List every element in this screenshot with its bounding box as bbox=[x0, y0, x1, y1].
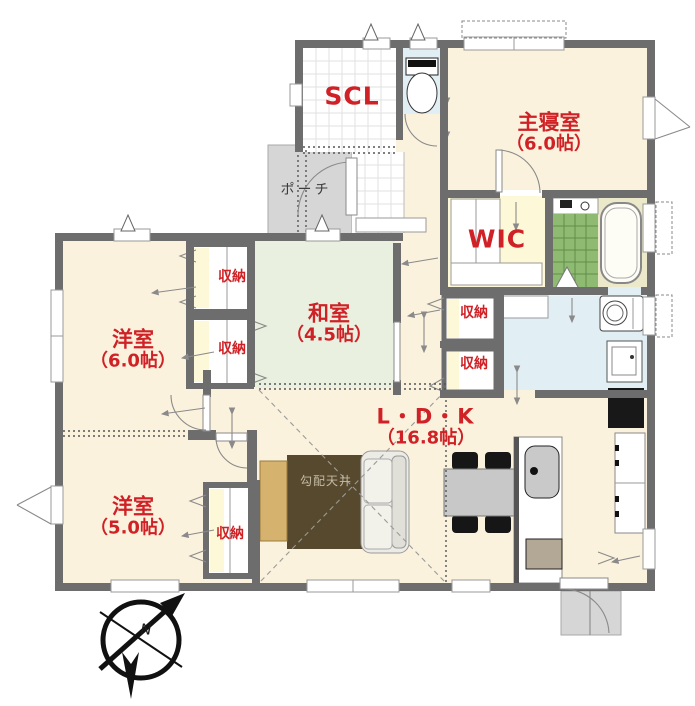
bath-window bbox=[643, 204, 655, 252]
western-room-1-size: （6.0帖） bbox=[90, 352, 176, 373]
tv-board bbox=[260, 461, 287, 541]
label-storage-3: 収納 bbox=[216, 526, 244, 542]
japanese-room-name: 和室 bbox=[286, 302, 372, 326]
label-western-room-2: 洋室 （5.0帖） bbox=[90, 495, 176, 540]
bath-counter bbox=[553, 198, 598, 214]
master-door bbox=[496, 150, 502, 192]
ldk-name: L・D・K bbox=[376, 405, 475, 429]
dining-chair bbox=[452, 515, 478, 533]
label-storage-4: 収納 bbox=[460, 305, 488, 321]
kitchen-faucet bbox=[530, 467, 538, 475]
casement-mark bbox=[17, 487, 51, 505]
master-bedroom-name: 主寝室 bbox=[506, 111, 592, 135]
storage-4-side bbox=[447, 299, 459, 338]
vent-mark bbox=[411, 24, 425, 40]
toilet-bowl bbox=[407, 73, 437, 113]
back-porch-floor bbox=[561, 591, 621, 635]
washitsu-sliding-door bbox=[394, 322, 400, 382]
toilet-tank-lid bbox=[408, 60, 436, 67]
dining-table bbox=[444, 469, 516, 516]
label-scl: SCL bbox=[324, 83, 379, 112]
label-wic: WIC bbox=[468, 226, 526, 255]
label-storage-5: 収納 bbox=[460, 356, 488, 372]
master-bedroom-size: （6.0帖） bbox=[506, 135, 592, 156]
bath-faucet bbox=[560, 200, 572, 208]
sofa-cushion bbox=[364, 459, 392, 503]
label-western-room-1: 洋室 （6.0帖） bbox=[90, 328, 176, 373]
western-room-1-name: 洋室 bbox=[90, 328, 176, 352]
japanese-room-size: （4.5帖） bbox=[286, 326, 372, 347]
label-ldk: L・D・K （16.8帖） bbox=[376, 405, 475, 450]
western-room-2-size: （5.0帖） bbox=[90, 519, 176, 540]
western-room-2-name: 洋室 bbox=[90, 495, 176, 519]
storage-1-side bbox=[193, 248, 209, 308]
sofa-cushion bbox=[364, 505, 392, 549]
ldk-size: （16.8帖） bbox=[376, 429, 475, 450]
washroom-window bbox=[643, 297, 655, 335]
label-storage-2: 収納 bbox=[218, 341, 246, 357]
label-master-bedroom: 主寝室 （6.0帖） bbox=[506, 111, 592, 156]
floor-plan: SCL 主寝室 （6.0帖） WIC 和室 （4.5帖） 洋室 （6.0帖） 洋… bbox=[0, 0, 695, 706]
scl-window bbox=[290, 84, 302, 106]
bath-drain bbox=[581, 202, 589, 210]
eaves-outline bbox=[462, 21, 566, 38]
stove bbox=[526, 539, 562, 569]
label-sloped-ceiling: 勾配天井 bbox=[300, 475, 352, 489]
dining-chair bbox=[485, 515, 511, 533]
casement-mark bbox=[17, 505, 51, 524]
dining-chair bbox=[485, 452, 511, 470]
vanity-faucet bbox=[630, 355, 634, 359]
shutter-box bbox=[656, 202, 672, 254]
vent-mark bbox=[364, 24, 378, 40]
linen-cabinet bbox=[503, 296, 548, 318]
compass bbox=[100, 593, 185, 699]
bathtub bbox=[601, 203, 641, 283]
vent-mark bbox=[121, 215, 135, 231]
ldk-bottom-window-2 bbox=[452, 580, 490, 592]
wic-shelf bbox=[451, 263, 542, 285]
kitchen-counter-edge bbox=[514, 437, 519, 583]
label-storage-1: 収納 bbox=[218, 269, 246, 285]
ldk-right-window bbox=[643, 529, 655, 569]
casement-mark bbox=[655, 99, 690, 127]
storage-5-side bbox=[447, 352, 459, 389]
dining-chair bbox=[452, 452, 478, 470]
kitchen-sink bbox=[525, 446, 559, 498]
master-right-window bbox=[643, 97, 655, 139]
west2-bottom-window bbox=[111, 580, 179, 592]
casement-mark bbox=[655, 127, 690, 139]
back-door bbox=[560, 578, 608, 589]
genkan-step bbox=[356, 218, 426, 232]
west1-door bbox=[203, 395, 210, 431]
rug bbox=[287, 455, 366, 549]
shutter-box bbox=[656, 295, 672, 337]
west2-left-window bbox=[51, 486, 63, 524]
bath-doorway bbox=[608, 287, 641, 296]
label-porch: ポーチ bbox=[281, 182, 332, 198]
label-compass-north: N bbox=[140, 621, 151, 638]
label-japanese-room: 和室 （4.5帖） bbox=[286, 302, 372, 347]
front-door bbox=[346, 158, 357, 215]
washing-machine bbox=[600, 296, 643, 331]
